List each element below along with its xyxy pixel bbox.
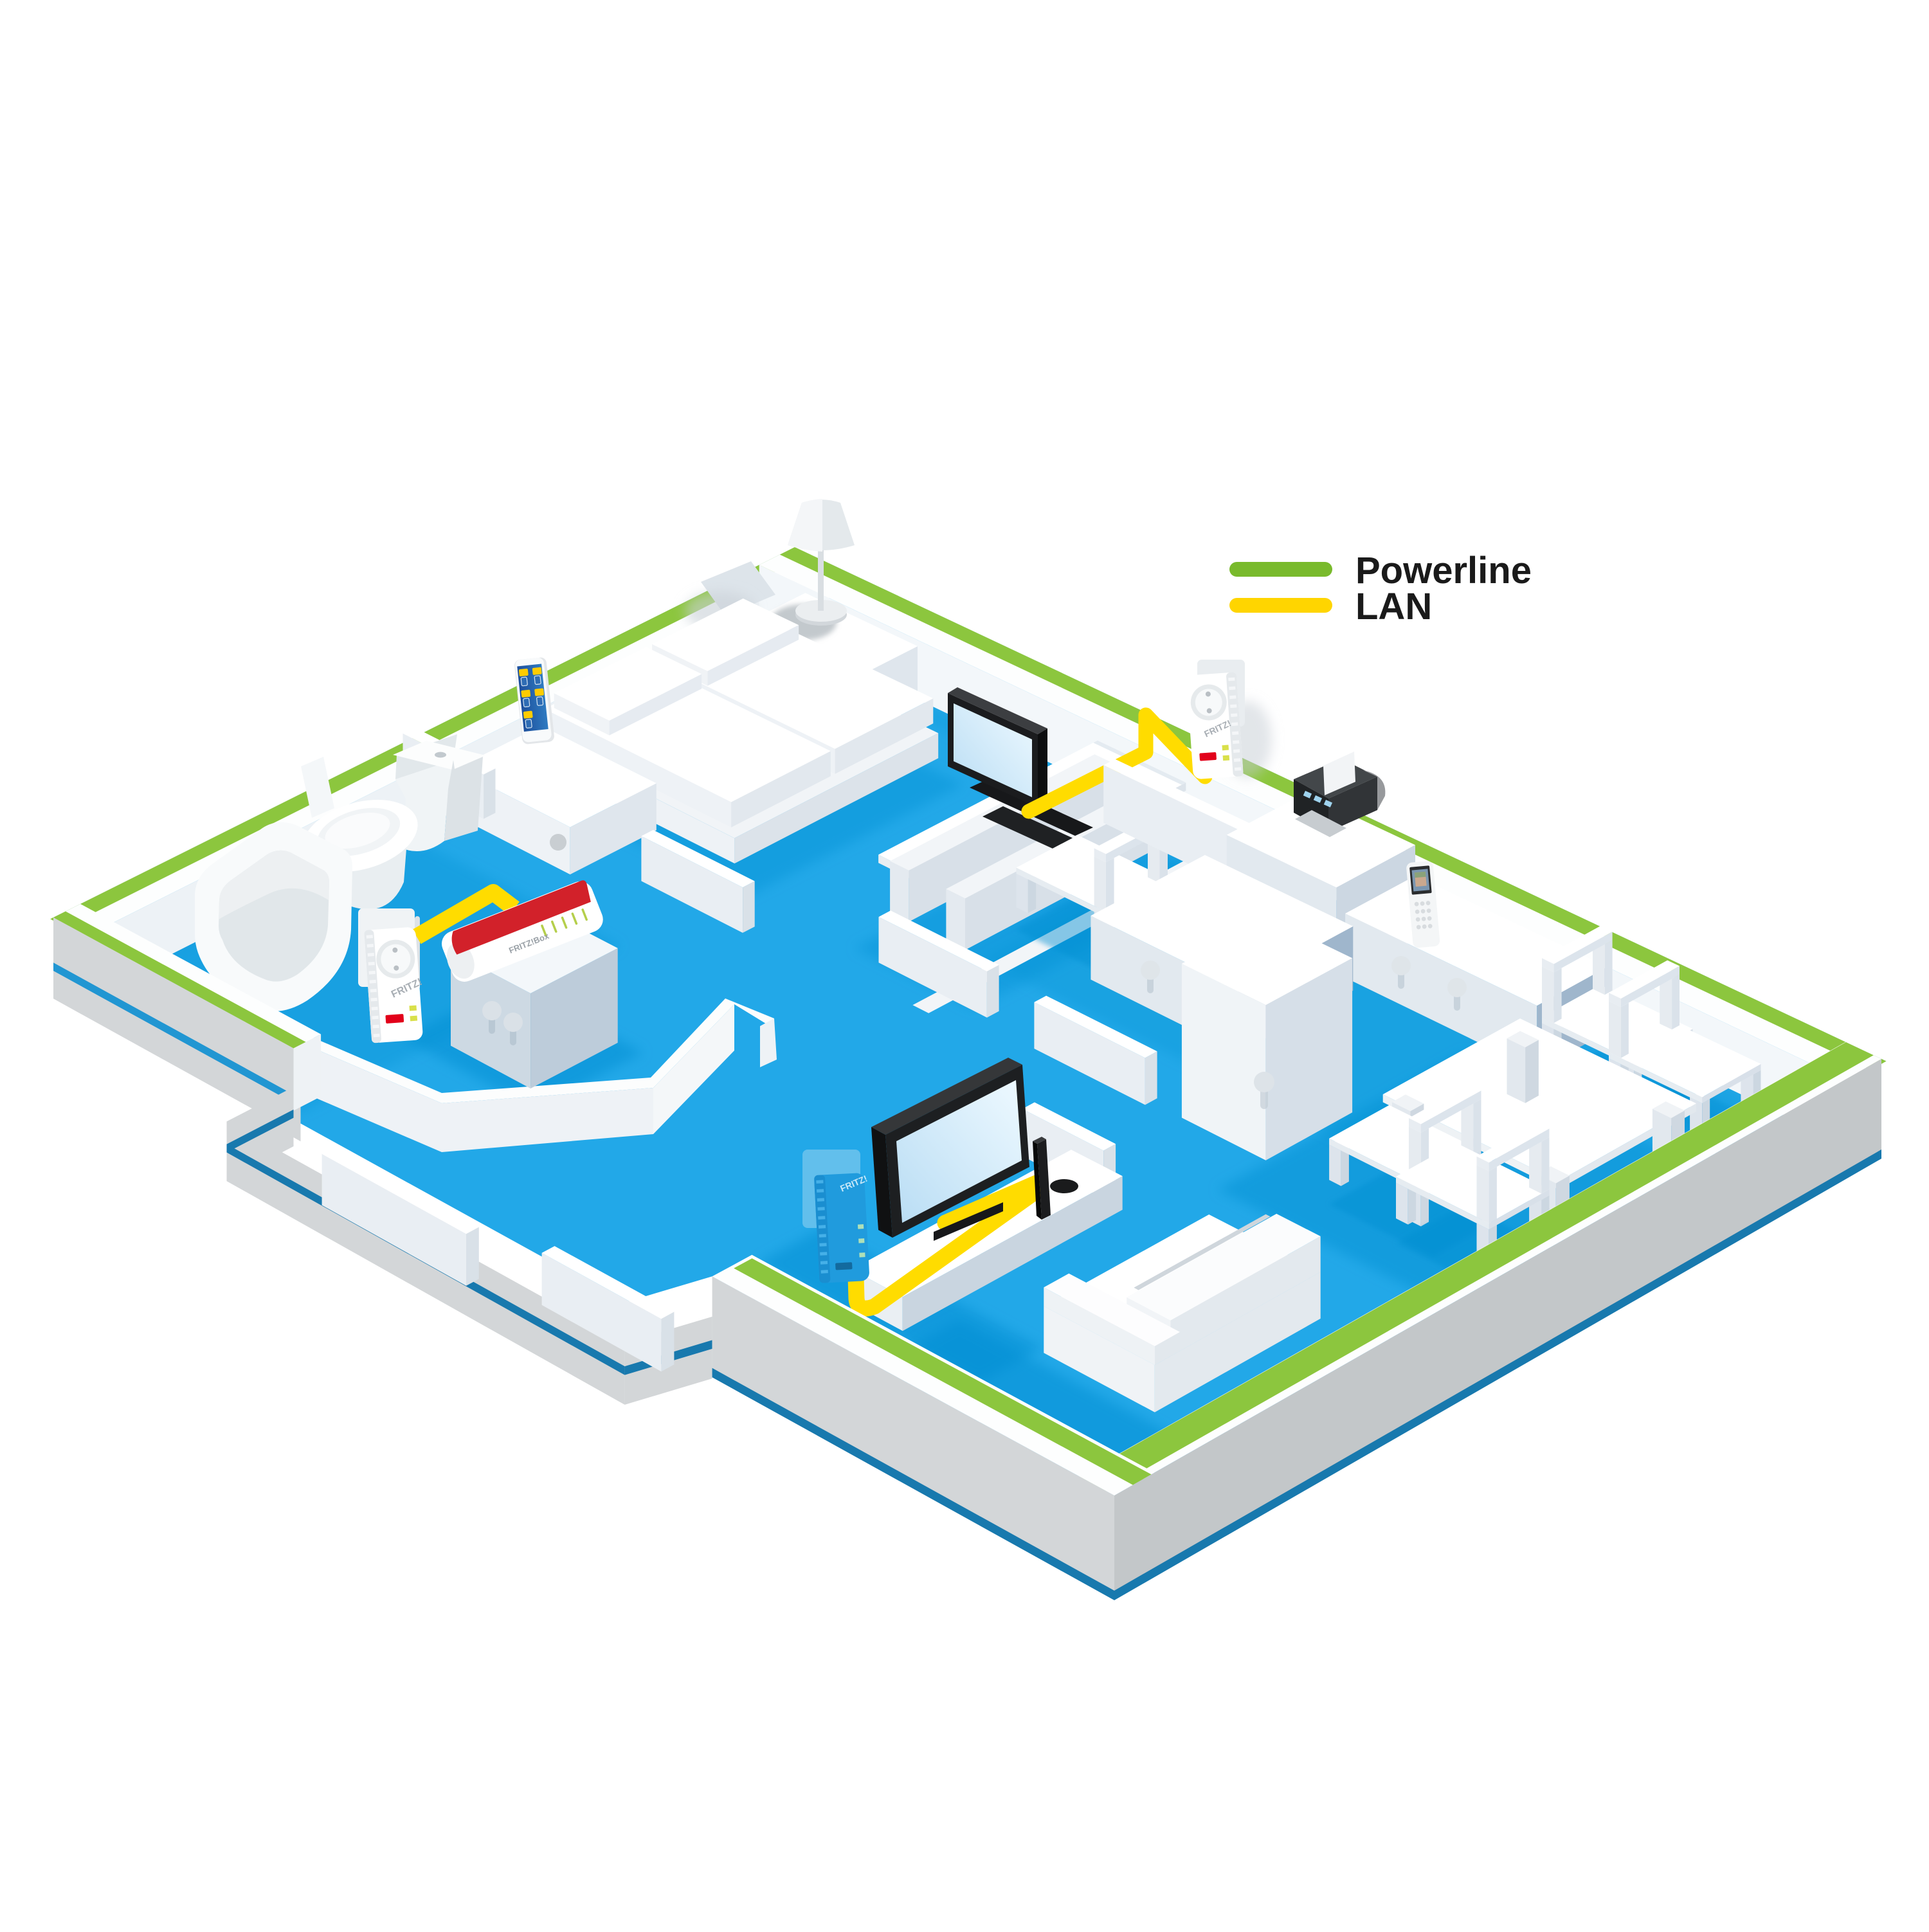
- svg-text:LAN: LAN: [1355, 586, 1432, 627]
